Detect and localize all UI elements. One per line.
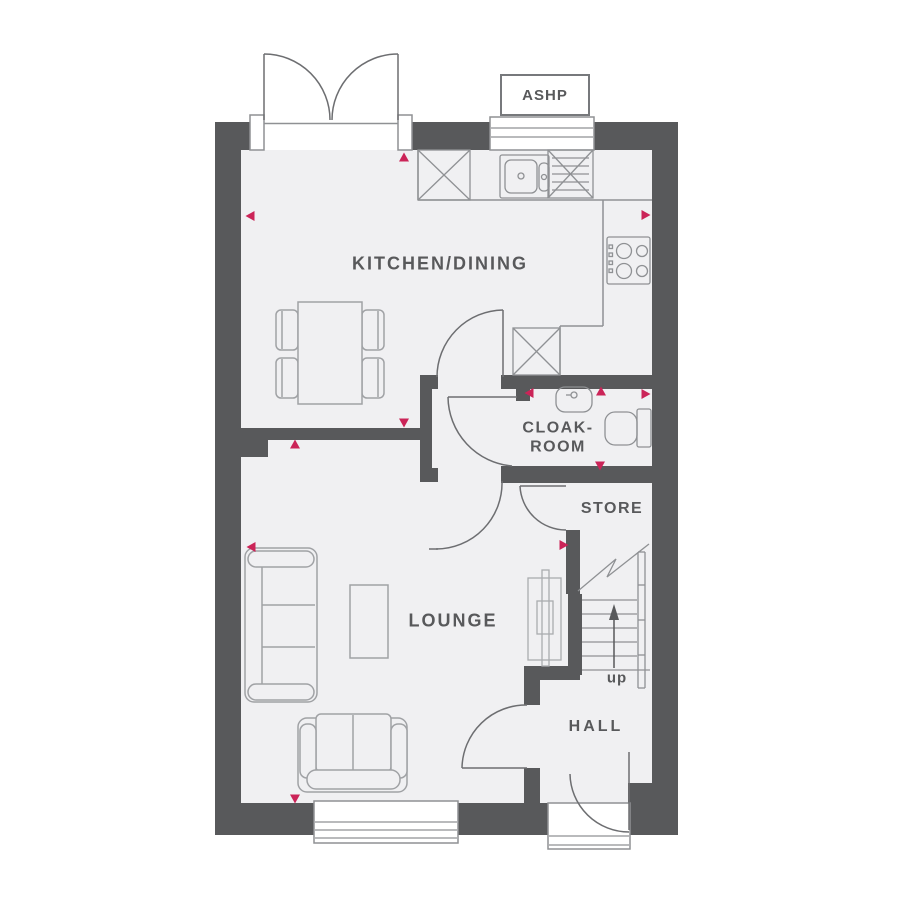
stairs-up-label: up [607, 670, 627, 687]
socket-marker [642, 389, 651, 399]
socket-marker [596, 387, 606, 396]
sofa-2-seat [298, 714, 407, 792]
room-label-cloakroom-line1: CLOAK- [522, 419, 593, 438]
dining-table [298, 302, 362, 404]
kitchen-window [490, 117, 594, 150]
room-label-lounge: LOUNGE [408, 611, 497, 632]
floorplan-drawing [0, 0, 900, 900]
front-door-threshold [548, 803, 630, 849]
socket-marker [399, 419, 409, 428]
room-label-store: STORE [581, 500, 643, 518]
socket-marker [525, 388, 534, 398]
room-label-kitchen-dining: KITCHEN/DINING [352, 254, 528, 275]
sofa-3-seat [245, 548, 317, 702]
room-label-cloakroom-line2: ROOM [530, 438, 586, 457]
floorplan: KITCHEN/DINING CLOAK- ROOM STORE LOUNGE … [0, 0, 900, 900]
socket-marker [560, 540, 569, 550]
lounge-window [314, 801, 458, 843]
french-doors [264, 54, 398, 120]
socket-marker [595, 462, 605, 471]
socket-marker [642, 210, 651, 220]
socket-marker [246, 211, 255, 221]
ashp-label: ASHP [522, 87, 568, 104]
french-door-opening [250, 115, 412, 150]
socket-marker [399, 153, 409, 162]
ashp-unit: ASHP [500, 74, 590, 116]
socket-marker [247, 542, 256, 552]
room-label-hall: HALL [569, 718, 624, 736]
socket-marker [290, 795, 300, 804]
coffee-table [350, 585, 388, 658]
socket-marker [290, 440, 300, 449]
